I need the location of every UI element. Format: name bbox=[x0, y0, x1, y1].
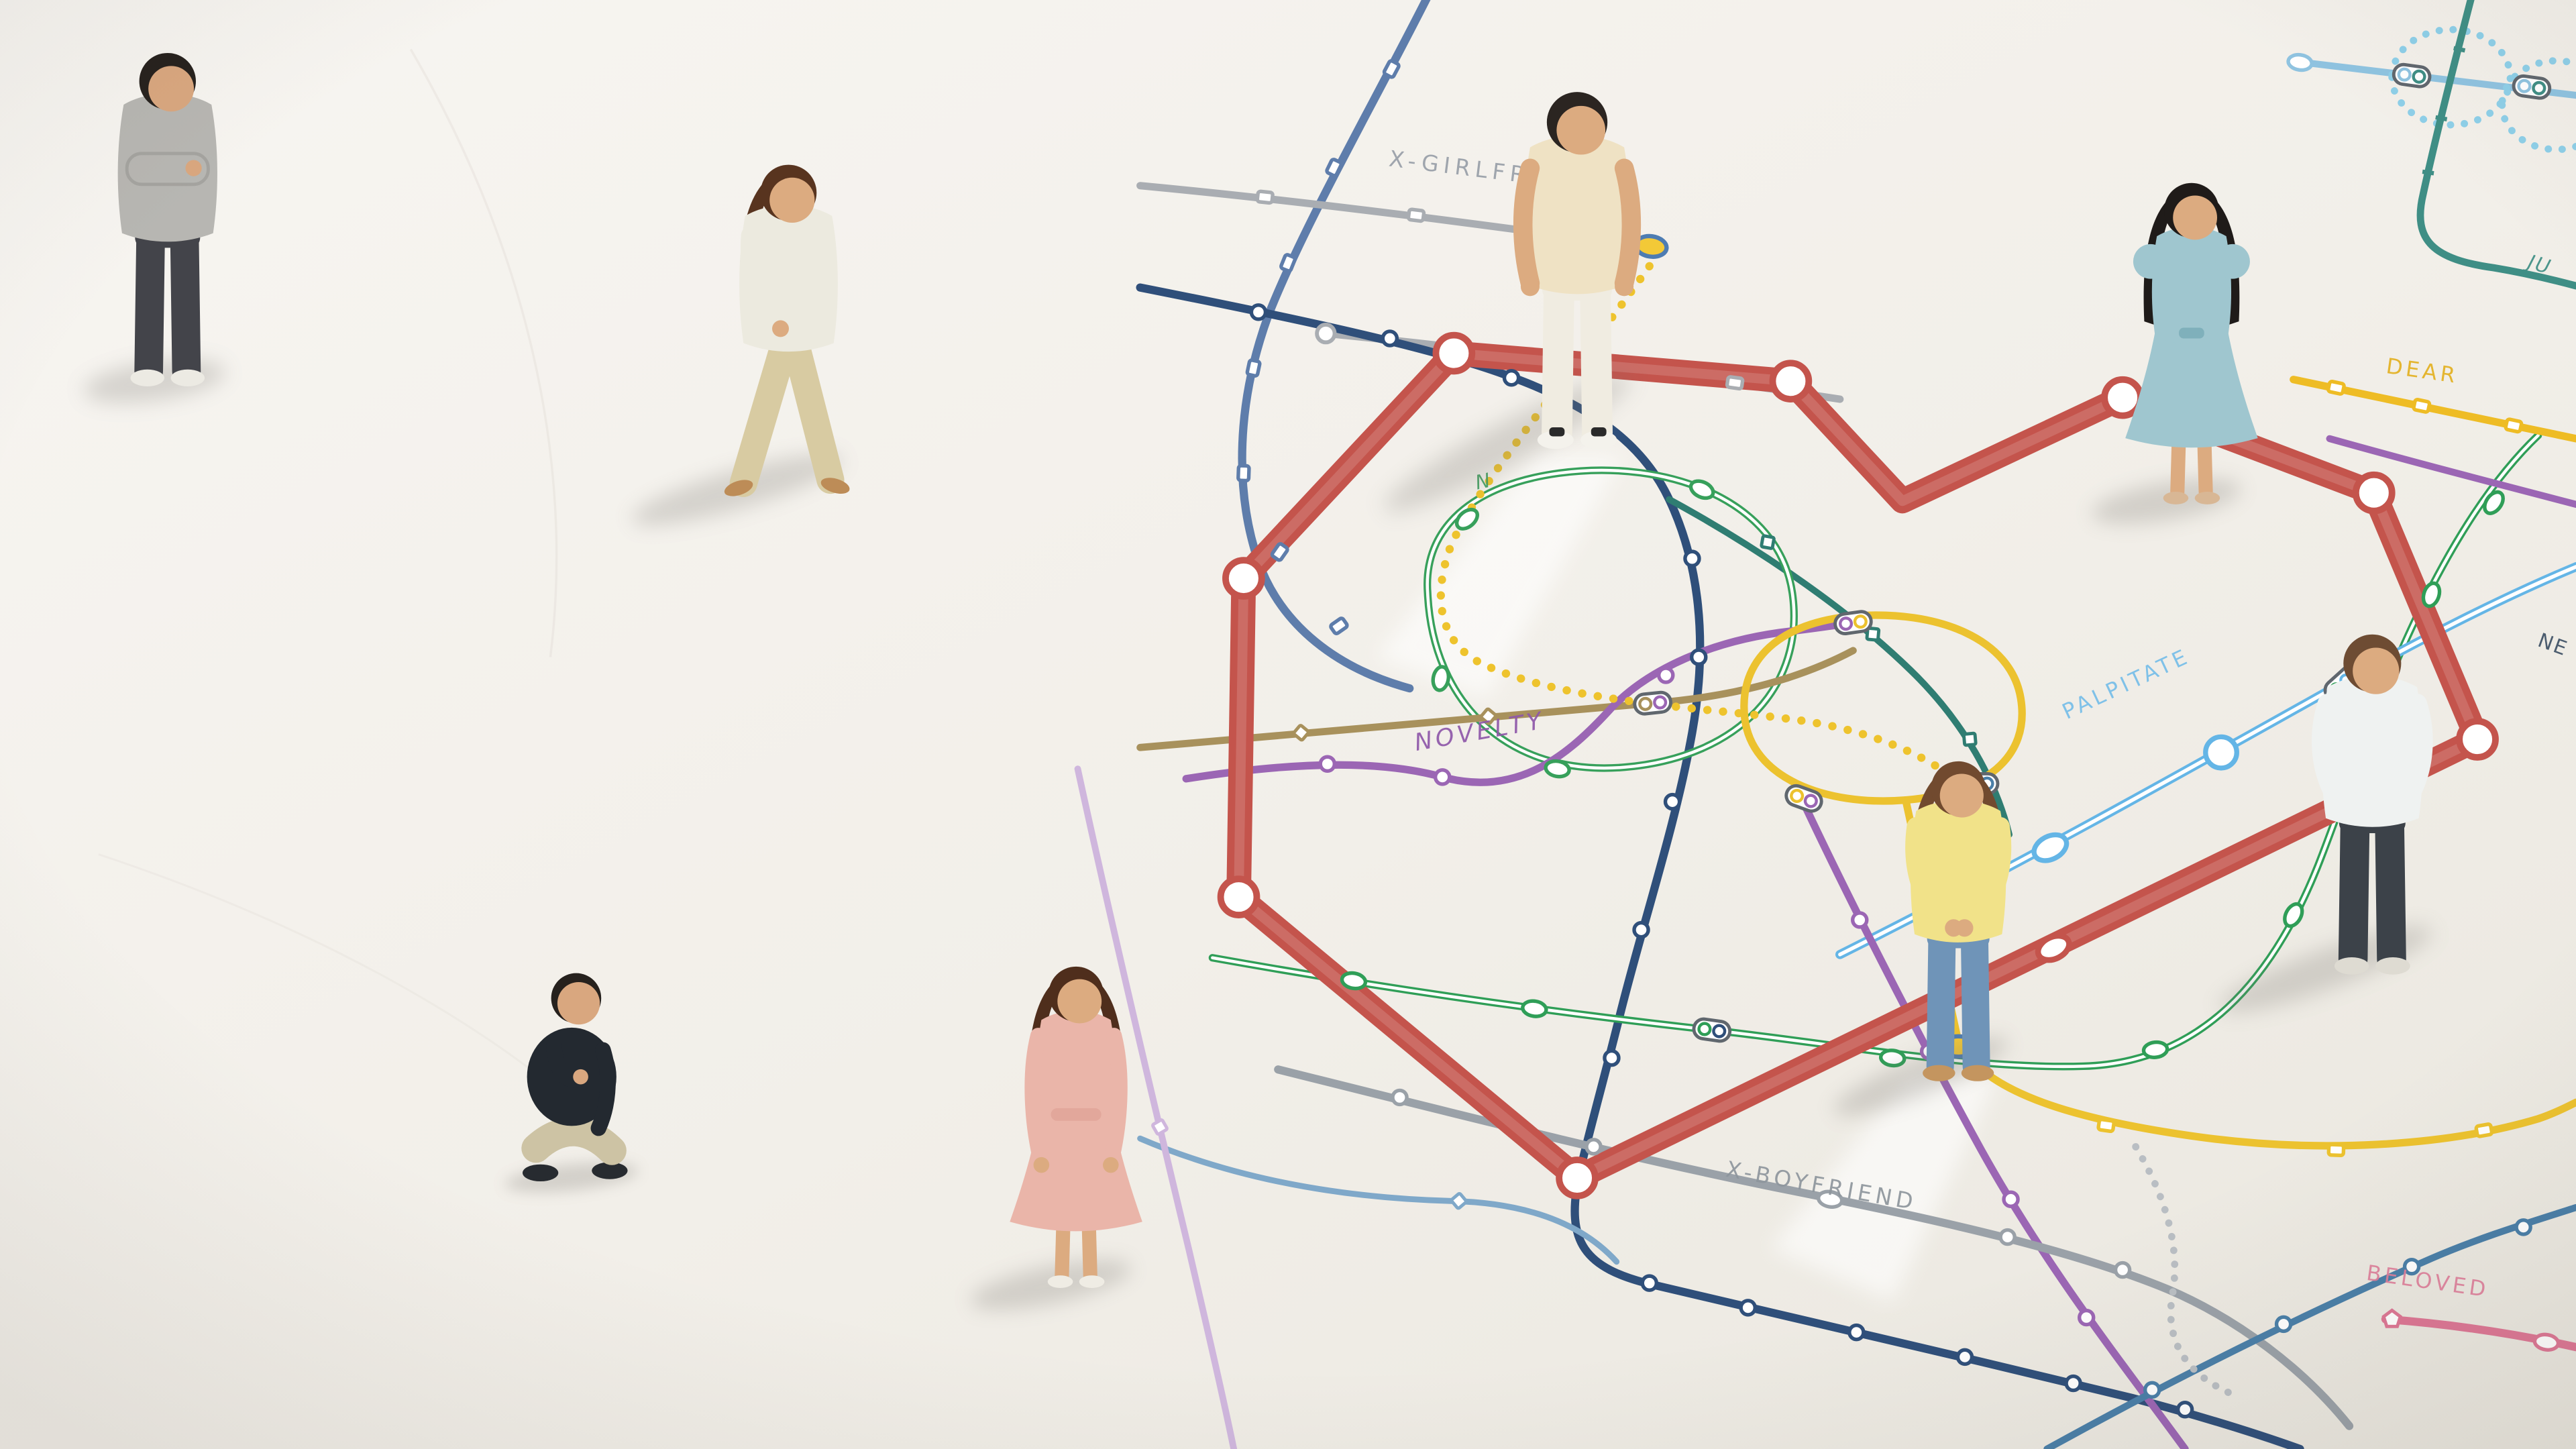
poster-page: { "scene": { "width": 1568, "height": 88… bbox=[0, 0, 2576, 1449]
vignette bbox=[0, 0, 2576, 1449]
relationship-metro-map-poster: X-GIRLFRIENDJUDEARNEPALPITATENOVELTYNX-B… bbox=[0, 0, 2576, 1449]
overlay bbox=[0, 0, 2576, 1449]
poster-stage: X-GIRLFRIENDJUDEARNEPALPITATENOVELTYNX-B… bbox=[0, 0, 2576, 1449]
